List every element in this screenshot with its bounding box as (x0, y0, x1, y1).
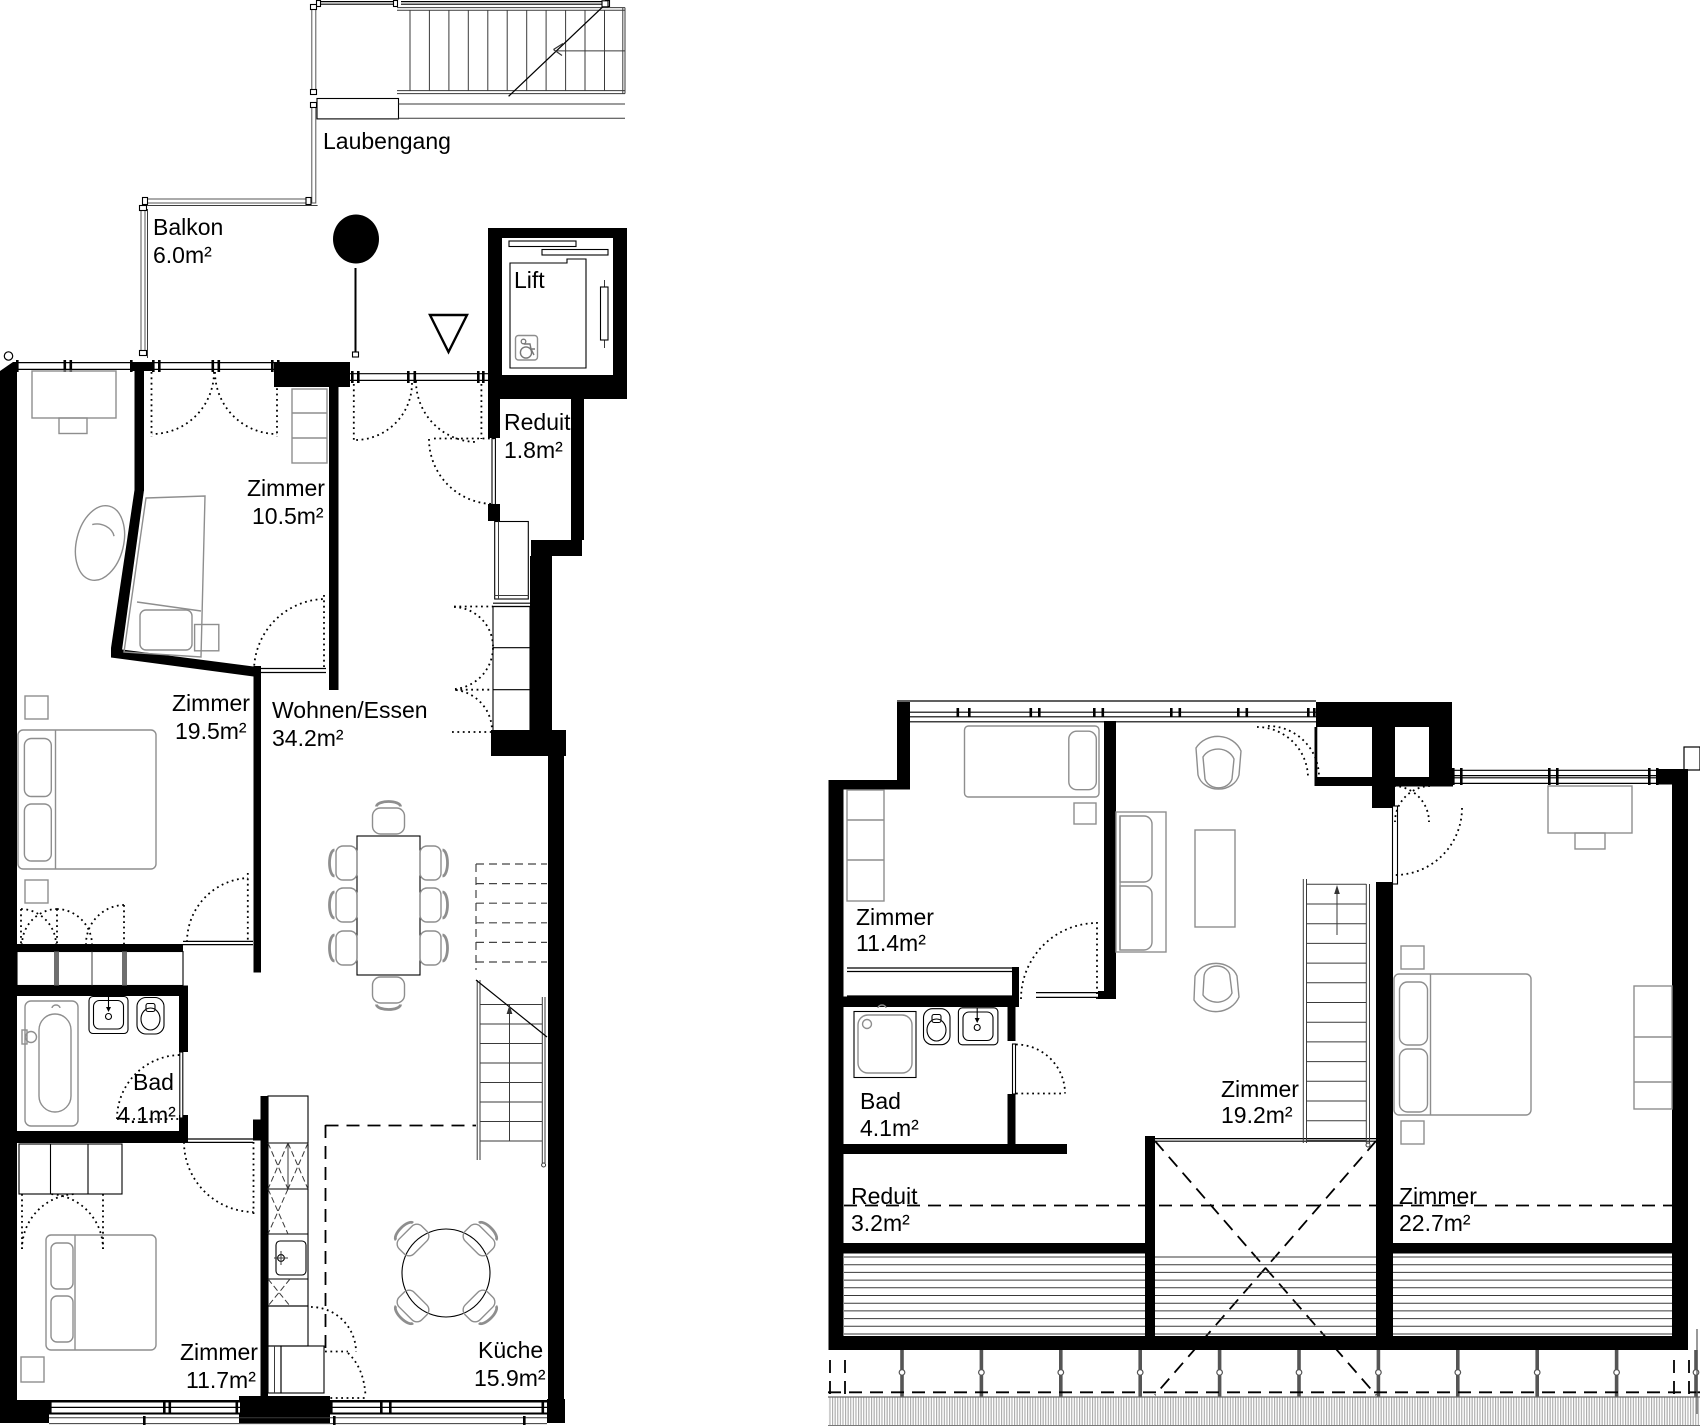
svg-text:11.7m²: 11.7m² (186, 1367, 256, 1393)
svg-text:Balkon: Balkon (153, 214, 223, 240)
svg-text:3.2m²: 3.2m² (851, 1210, 910, 1236)
svg-text:Zimmer: Zimmer (856, 904, 934, 930)
svg-text:Lift: Lift (514, 267, 545, 293)
svg-text:Bad: Bad (860, 1088, 901, 1114)
svg-text:Reduit: Reduit (504, 409, 571, 435)
svg-text:Zimmer: Zimmer (1221, 1076, 1299, 1102)
svg-text:11.4m²: 11.4m² (856, 930, 926, 956)
svg-text:Zimmer: Zimmer (1399, 1183, 1477, 1209)
svg-text:Reduit: Reduit (851, 1183, 918, 1209)
svg-text:Zimmer: Zimmer (180, 1339, 258, 1365)
svg-text:Bad: Bad (133, 1069, 174, 1095)
svg-text:19.5m²: 19.5m² (175, 718, 247, 744)
svg-text:Zimmer: Zimmer (172, 690, 250, 716)
svg-text:4.1m²: 4.1m² (117, 1102, 176, 1128)
svg-text:1.8m²: 1.8m² (504, 437, 563, 463)
svg-text:6.0m²: 6.0m² (153, 242, 212, 268)
svg-text:10.5m²: 10.5m² (252, 503, 324, 529)
svg-text:Laubengang: Laubengang (323, 128, 451, 154)
svg-text:Zimmer: Zimmer (247, 475, 325, 501)
svg-text:Wohnen/Essen: Wohnen/Essen (272, 697, 428, 723)
svg-text:22.7m²: 22.7m² (1399, 1210, 1471, 1236)
svg-text:15.9m²: 15.9m² (474, 1365, 546, 1391)
svg-text:Küche: Küche (478, 1337, 543, 1363)
svg-text:34.2m²: 34.2m² (272, 725, 344, 751)
svg-text:19.2m²: 19.2m² (1221, 1102, 1293, 1128)
svg-text:4.1m²: 4.1m² (860, 1115, 919, 1141)
